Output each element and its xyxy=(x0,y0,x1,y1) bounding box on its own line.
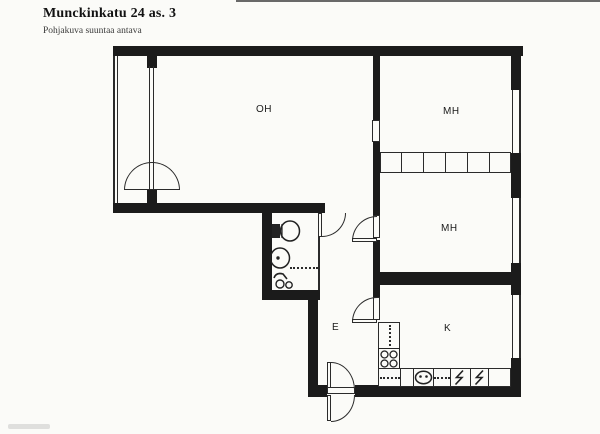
wardrobe-divider xyxy=(445,152,446,173)
room-label-bedroom-2: MH xyxy=(441,223,458,234)
bathroom-door-arc xyxy=(322,213,346,237)
shower-area-divider xyxy=(290,267,318,269)
balcony-double-door-arc xyxy=(124,162,180,190)
counter-divider xyxy=(400,368,401,387)
window-bedroom2-inner xyxy=(512,198,513,263)
window-kitchen-outer xyxy=(519,295,521,358)
window-bedroom1-outer xyxy=(519,90,521,153)
counter-dotted-line xyxy=(380,377,400,379)
wall-right-seg1 xyxy=(511,46,521,90)
room-label-kitchen: K xyxy=(444,323,451,334)
livingroom-bedroom1-door-closed xyxy=(372,120,380,142)
window-bedroom2-outer xyxy=(519,198,521,263)
wall-bottom-left-of-entry xyxy=(308,385,327,397)
kitchen-cabinet-dashed-line xyxy=(389,325,391,346)
wall-livingroom-bottom xyxy=(113,203,325,213)
wall-hallway-left xyxy=(308,300,318,390)
scanned-floor-plan-page: Munckinkatu 24 as. 3 Pohjakuva suuntaa a… xyxy=(0,0,600,434)
wall-inner-vertical-seg2 xyxy=(373,142,380,215)
refrigerator-icon xyxy=(451,369,469,386)
page-subtitle: Pohjakuva suuntaa antava xyxy=(43,26,142,36)
page-title: Munckinkatu 24 as. 3 xyxy=(43,6,176,22)
kitchen-door-arc xyxy=(352,297,377,322)
balcony-glass-line-inner xyxy=(117,56,118,203)
wardrobe-divider xyxy=(401,152,402,173)
room-label-hallway: E xyxy=(332,322,339,333)
wardrobe-divider xyxy=(467,152,468,173)
entrance-door-arc-outer xyxy=(331,395,355,422)
room-label-living-room: OH xyxy=(256,104,272,115)
wall-right-seg3 xyxy=(511,263,521,295)
toilet-icon xyxy=(271,219,303,243)
counter-dotted-line xyxy=(434,377,450,379)
wall-top xyxy=(113,46,523,56)
wall-inner-vertical-seg3 xyxy=(373,240,380,297)
balcony-door-baseline xyxy=(124,189,180,190)
scan-artifact-smudge xyxy=(8,424,50,429)
wall-inner-vertical-seg1 xyxy=(373,56,380,120)
scan-artifact-line xyxy=(236,0,600,2)
wall-bathroom-bottom xyxy=(262,290,320,300)
room-label-bedroom-1: MH xyxy=(443,106,460,117)
balcony-glass-line-outer xyxy=(113,56,115,203)
wardrobe-divider xyxy=(423,152,424,173)
refrigerator-icon xyxy=(471,369,489,386)
entrance-door-arc-inner xyxy=(331,362,355,390)
kitchen-sink-icon xyxy=(414,369,433,386)
shower-icon xyxy=(272,271,298,291)
wall-right-seg2 xyxy=(511,153,521,198)
wall-bathroom-right-thin xyxy=(318,237,320,290)
window-kitchen-inner xyxy=(512,295,513,358)
balcony-partition-stub-bottom xyxy=(147,190,157,203)
wall-bedroom2-kitchen xyxy=(373,272,511,285)
wardrobe-divider xyxy=(489,152,490,173)
window-bedroom1-inner xyxy=(512,90,513,153)
stove-icon xyxy=(378,348,400,370)
bedroom2-door-arc xyxy=(352,216,377,241)
